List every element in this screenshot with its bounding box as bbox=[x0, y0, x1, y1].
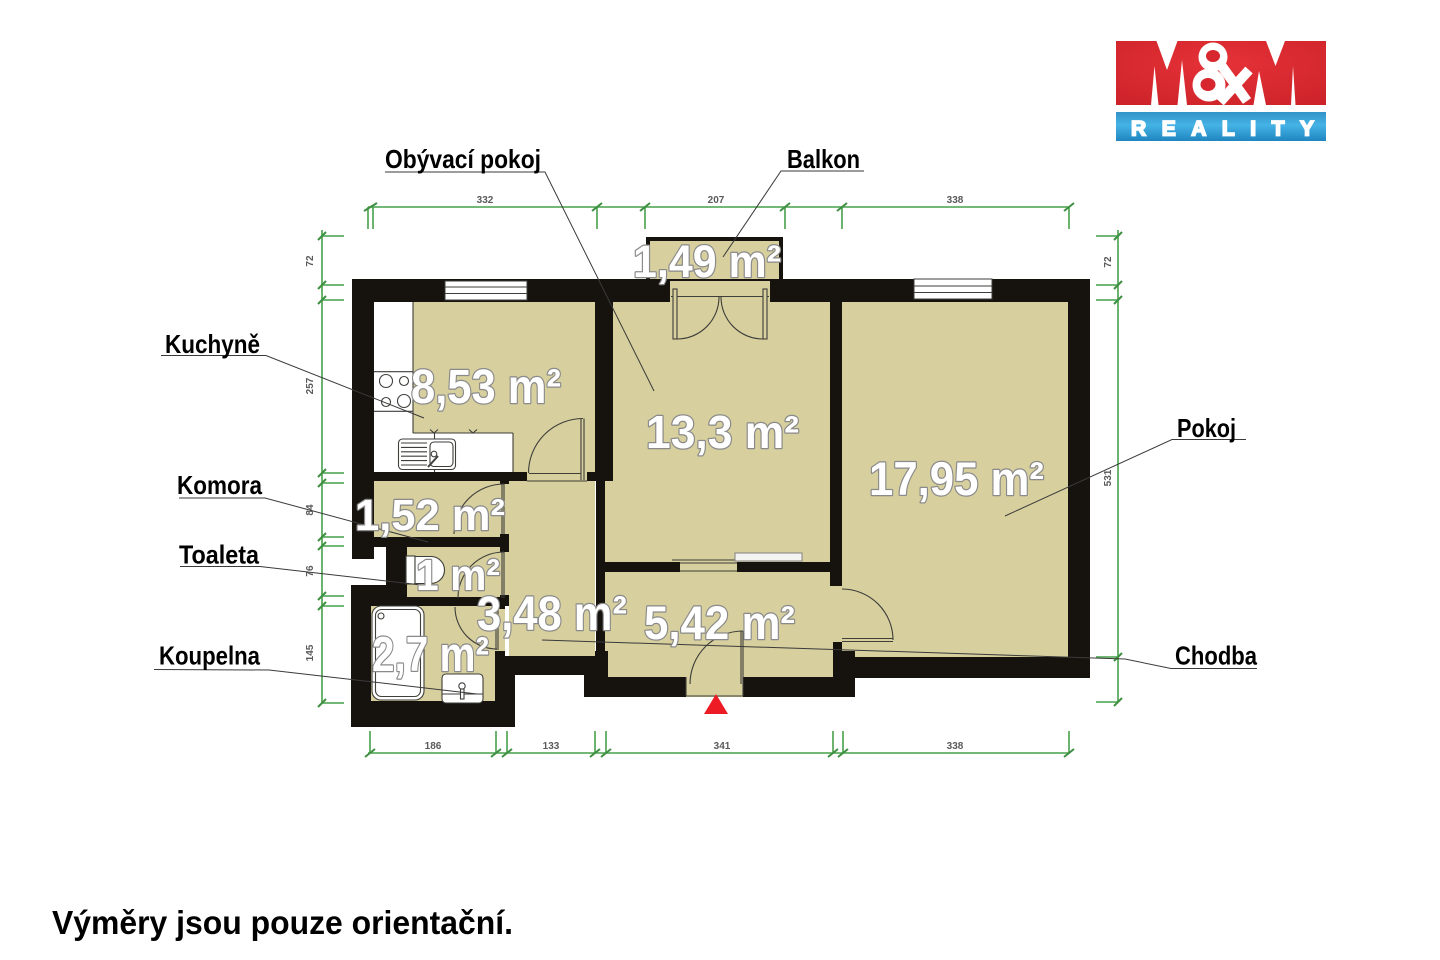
svg-text:186: 186 bbox=[425, 741, 442, 752]
svg-text:76: 76 bbox=[305, 565, 316, 577]
svg-text:341: 341 bbox=[714, 741, 731, 752]
svg-text:13,3 m²: 13,3 m² bbox=[646, 406, 799, 458]
svg-text:3,48 m²: 3,48 m² bbox=[477, 588, 627, 641]
svg-text:207: 207 bbox=[708, 195, 725, 206]
svg-text:Výměry jsou pouze orientační.: Výměry jsou pouze orientační. bbox=[52, 904, 513, 941]
svg-text:8,53 m²: 8,53 m² bbox=[411, 361, 561, 414]
svg-text:Toaleta: Toaleta bbox=[179, 540, 259, 570]
svg-text:133: 133 bbox=[543, 741, 560, 752]
svg-text:Kuchyně: Kuchyně bbox=[165, 329, 260, 359]
svg-text:338: 338 bbox=[947, 195, 964, 206]
svg-text:1,52 m²: 1,52 m² bbox=[355, 491, 505, 540]
svg-text:Chodba: Chodba bbox=[1175, 641, 1257, 671]
svg-text:72: 72 bbox=[305, 255, 316, 267]
svg-text:338: 338 bbox=[947, 741, 964, 752]
svg-text:1,49 m²: 1,49 m² bbox=[633, 236, 781, 287]
svg-text:257: 257 bbox=[305, 377, 316, 394]
svg-text:Balkon: Balkon bbox=[787, 144, 860, 174]
svg-text:5,42 m²: 5,42 m² bbox=[644, 596, 795, 649]
svg-text:Pokoj: Pokoj bbox=[1177, 413, 1236, 443]
svg-text:17,95 m²: 17,95 m² bbox=[869, 452, 1044, 505]
svg-text:Obývací pokoj: Obývací pokoj bbox=[385, 144, 541, 174]
svg-text:531: 531 bbox=[1103, 469, 1114, 486]
svg-text:Komora: Komora bbox=[177, 470, 262, 500]
svg-text:72: 72 bbox=[1103, 256, 1114, 268]
svg-text:332: 332 bbox=[477, 195, 494, 206]
svg-text:Koupelna: Koupelna bbox=[159, 641, 260, 671]
svg-text:145: 145 bbox=[305, 644, 316, 661]
svg-text:2,7 m²: 2,7 m² bbox=[372, 628, 489, 682]
